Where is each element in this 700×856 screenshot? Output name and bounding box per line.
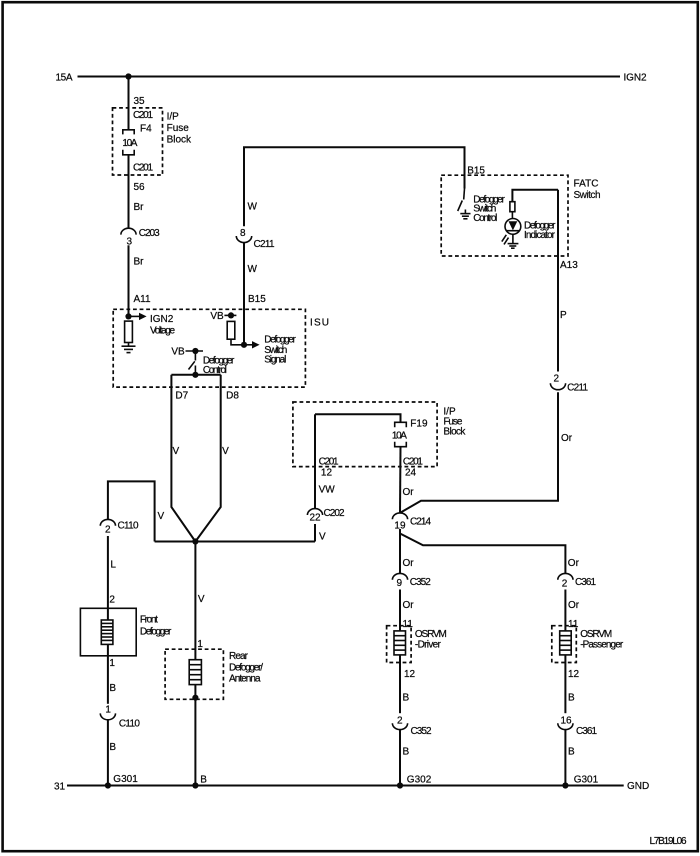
svg-text:C201: C201	[133, 163, 153, 174]
svg-text:B: B	[403, 747, 410, 758]
svg-text:B: B	[568, 693, 575, 704]
svg-text:Antenna: Antenna	[229, 674, 261, 685]
svg-text:F19: F19	[410, 419, 428, 430]
svg-text:Or: Or	[403, 558, 415, 569]
svg-text:OSRVM: OSRVM	[580, 629, 612, 640]
svg-text:8: 8	[240, 228, 246, 239]
svg-text:Indicator: Indicator	[524, 230, 556, 241]
svg-text:Front: Front	[140, 615, 158, 626]
svg-text:16: 16	[561, 716, 573, 727]
svg-text:Rear: Rear	[229, 651, 249, 662]
svg-text:L: L	[110, 560, 116, 571]
svg-text:2: 2	[554, 374, 560, 385]
svg-text:-Driver: -Driver	[415, 640, 442, 651]
svg-text:56: 56	[134, 182, 146, 193]
svg-text:F4: F4	[140, 124, 152, 135]
svg-text:1: 1	[109, 658, 115, 669]
svg-text:D7: D7	[175, 391, 188, 402]
svg-text:24: 24	[405, 468, 417, 479]
svg-text:G301: G301	[113, 774, 138, 785]
svg-text:B15: B15	[467, 166, 485, 177]
svg-text:1: 1	[105, 705, 111, 716]
svg-text:Block: Block	[443, 427, 466, 438]
svg-text:2: 2	[397, 716, 403, 727]
svg-text:Br: Br	[134, 257, 145, 268]
svg-text:Switch: Switch	[574, 190, 601, 201]
svg-text:31: 31	[54, 782, 66, 793]
svg-text:-Passenger: -Passenger	[580, 640, 624, 651]
svg-text:10A: 10A	[392, 431, 407, 442]
svg-text:Control: Control	[473, 213, 497, 224]
svg-text:2: 2	[109, 595, 115, 606]
svg-text:2: 2	[105, 525, 111, 536]
svg-text:Or: Or	[568, 600, 580, 611]
svg-text:C110: C110	[118, 521, 139, 532]
svg-text:Or: Or	[403, 600, 415, 611]
svg-text:C352: C352	[410, 577, 431, 588]
svg-text:C203: C203	[139, 228, 160, 239]
svg-text:C352: C352	[411, 726, 432, 737]
svg-text:12: 12	[321, 468, 333, 479]
svg-text:A11: A11	[134, 294, 151, 305]
svg-text:P: P	[560, 310, 567, 321]
svg-text:D8: D8	[226, 391, 239, 402]
svg-text:OSRVM: OSRVM	[415, 629, 447, 640]
svg-text:15A: 15A	[56, 73, 73, 84]
svg-text:B: B	[109, 742, 116, 753]
svg-text:C361: C361	[575, 577, 596, 588]
svg-text:IGN2: IGN2	[624, 73, 647, 84]
svg-text:Or: Or	[568, 558, 580, 569]
svg-text:Defogger: Defogger	[264, 335, 296, 346]
svg-text:Defogger/: Defogger/	[229, 663, 263, 674]
svg-text:Defogger: Defogger	[140, 627, 172, 638]
svg-text:C201: C201	[133, 110, 153, 121]
svg-text:C214: C214	[410, 517, 431, 528]
svg-text:10A: 10A	[122, 138, 137, 149]
svg-text:B: B	[200, 775, 207, 786]
svg-text:Or: Or	[561, 433, 573, 444]
svg-text:B15: B15	[248, 294, 266, 305]
svg-text:11: 11	[568, 619, 579, 630]
svg-text:1: 1	[197, 639, 203, 650]
svg-text:C110: C110	[119, 719, 140, 730]
svg-text:Fuse: Fuse	[167, 123, 190, 134]
svg-text:W: W	[248, 202, 258, 213]
svg-text:Or: Or	[403, 487, 415, 498]
svg-text:2: 2	[562, 579, 568, 590]
svg-text:C202: C202	[324, 508, 345, 519]
svg-text:V: V	[173, 446, 180, 457]
svg-text:B: B	[109, 683, 116, 694]
svg-text:L7B19L06: L7B19L06	[650, 836, 687, 847]
svg-text:V: V	[222, 446, 229, 457]
svg-text:22: 22	[310, 513, 322, 524]
svg-text:B: B	[403, 693, 410, 704]
svg-text:C201: C201	[319, 457, 339, 468]
svg-text:VB: VB	[171, 347, 185, 358]
svg-text:C361: C361	[576, 726, 597, 737]
svg-text:G301: G301	[574, 775, 599, 786]
svg-text:35: 35	[134, 96, 146, 107]
svg-text:12: 12	[568, 669, 580, 680]
svg-text:Signal: Signal	[264, 355, 286, 366]
svg-text:Voltage: Voltage	[150, 326, 175, 337]
svg-text:GND: GND	[627, 781, 649, 792]
svg-text:12: 12	[404, 669, 416, 680]
svg-text:VW: VW	[319, 485, 336, 496]
svg-text:9: 9	[397, 578, 403, 589]
svg-text:V: V	[319, 532, 326, 543]
svg-text:W: W	[248, 264, 258, 275]
svg-text:C211: C211	[254, 239, 275, 250]
svg-text:Block: Block	[167, 135, 192, 146]
svg-text:VB: VB	[210, 311, 224, 322]
svg-text:G302: G302	[407, 775, 432, 786]
svg-text:IGN2: IGN2	[150, 314, 174, 325]
svg-text:FATC: FATC	[574, 179, 599, 190]
svg-text:I/P: I/P	[167, 112, 180, 123]
svg-text:V: V	[198, 594, 205, 605]
svg-text:C201: C201	[403, 457, 423, 468]
svg-text:V: V	[158, 511, 165, 522]
svg-text:B: B	[568, 747, 575, 758]
svg-text:A13: A13	[560, 260, 578, 271]
svg-text:C211: C211	[567, 383, 588, 394]
svg-text:Br: Br	[134, 202, 145, 213]
